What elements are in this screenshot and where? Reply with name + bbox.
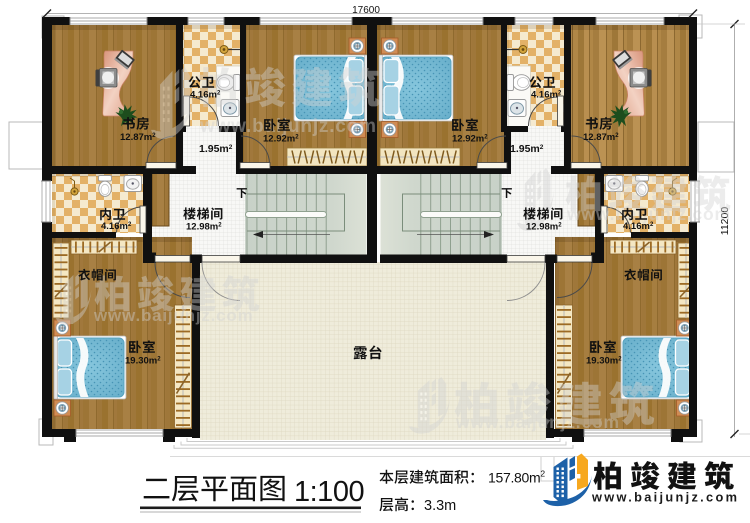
svg-text:19.30m2: 19.30m2 — [125, 356, 161, 367]
svg-text:4.16m2: 4.16m2 — [623, 221, 654, 232]
svg-text:www.baijunjz.com: www.baijunjz.com — [591, 490, 739, 505]
svg-text:4.16m2: 4.16m2 — [190, 90, 221, 101]
svg-text:4.16m2: 4.16m2 — [531, 90, 562, 101]
svg-text:12.92m2: 12.92m2 — [263, 134, 299, 145]
svg-text:12.98m2: 12.98m2 — [526, 222, 562, 233]
svg-text:12.87m2: 12.87m2 — [583, 132, 619, 143]
svg-text:www.baijunjz.com: www.baijunjz.com — [455, 412, 620, 432]
svg-text:4.16m2: 4.16m2 — [101, 221, 132, 232]
svg-text:1.95m2: 1.95m2 — [199, 143, 233, 155]
svg-text:157.80m2: 157.80m2 — [488, 469, 545, 486]
svg-text:www.baijunjz.com: www.baijunjz.com — [93, 306, 254, 325]
svg-text:12.87m2: 12.87m2 — [120, 132, 156, 143]
svg-text:19.30m2: 19.30m2 — [586, 356, 622, 367]
svg-text:1:100: 1:100 — [294, 476, 364, 508]
svg-text:3.3m: 3.3m — [424, 498, 456, 514]
svg-text:12.92m2: 12.92m2 — [452, 134, 488, 145]
svg-text:17600: 17600 — [352, 5, 380, 16]
svg-text:1.95m2: 1.95m2 — [510, 143, 544, 155]
svg-text:12.98m2: 12.98m2 — [186, 222, 222, 233]
